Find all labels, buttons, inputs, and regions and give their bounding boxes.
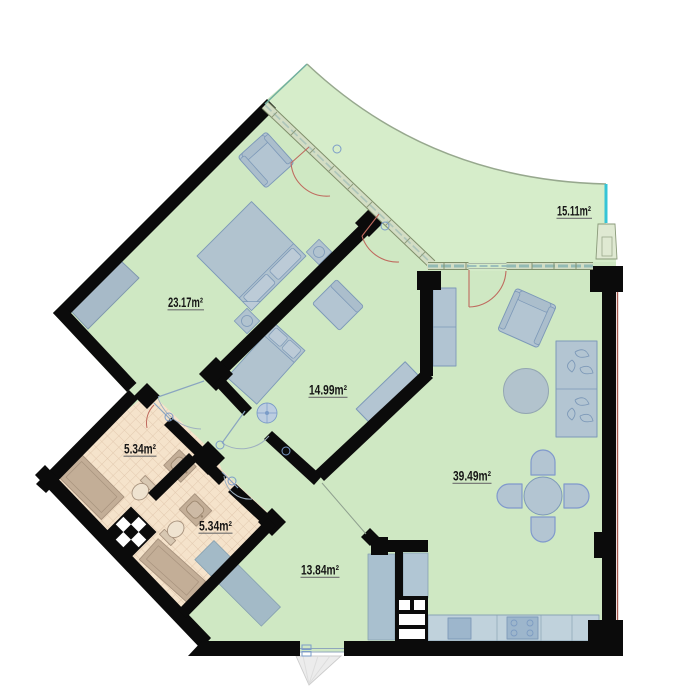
svg-text:23.17m²: 23.17m² [168,295,203,310]
svg-text:14.99m²: 14.99m² [309,383,347,398]
svg-text:15.11m²: 15.11m² [557,204,591,219]
svg-text:5.34m²: 5.34m² [124,442,156,457]
svg-text:39.49m²: 39.49m² [453,469,491,484]
svg-text:5.34m²: 5.34m² [199,519,232,534]
svg-text:13.84m²: 13.84m² [301,563,339,578]
